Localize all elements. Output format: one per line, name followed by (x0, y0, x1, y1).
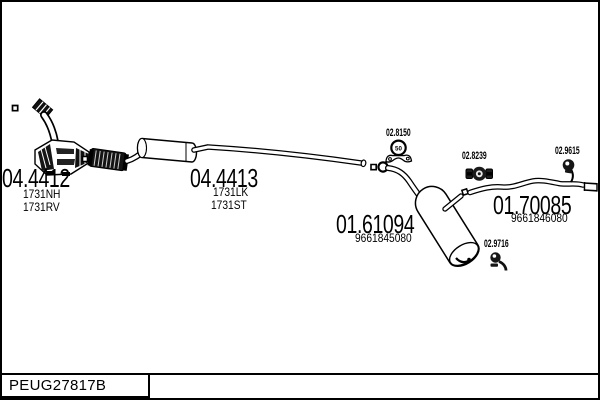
connector-square-icon (462, 189, 468, 195)
gasket-icon: 50 (386, 141, 412, 162)
part-code-clamp: 02.8239 (462, 151, 487, 162)
part-code-hanger-rear: 02.9716 (484, 239, 509, 250)
oe-ref-center-section-1: 1731LK (213, 186, 248, 198)
rubber-hanger-icon-rear (490, 252, 506, 270)
oe-ref-center-section-2: 1731ST (211, 199, 247, 211)
oe-ref-tail-pipe: 9661846080 (511, 212, 568, 224)
catalog-code: PEUG27817B (9, 377, 106, 394)
reference-marker-icon (13, 106, 18, 111)
part-code-gasket: 02.8150 (386, 128, 411, 139)
clamp-icon (466, 167, 493, 181)
connector-square-icon (83, 157, 88, 162)
oe-ref-front-pipe-2: 1731RV (23, 201, 60, 213)
catalog-code-box: PEUG27817B (2, 373, 150, 398)
oe-ref-rear-muffler: 9661845080 (355, 232, 412, 244)
exhaust-diagram-page: 50 (0, 0, 600, 400)
gasket-size-label: 50 (395, 145, 402, 152)
connector-square-icon (371, 165, 376, 170)
part-code-hanger-tail: 02.9615 (555, 146, 580, 157)
oe-ref-front-pipe-1: 1731NH (23, 188, 60, 200)
